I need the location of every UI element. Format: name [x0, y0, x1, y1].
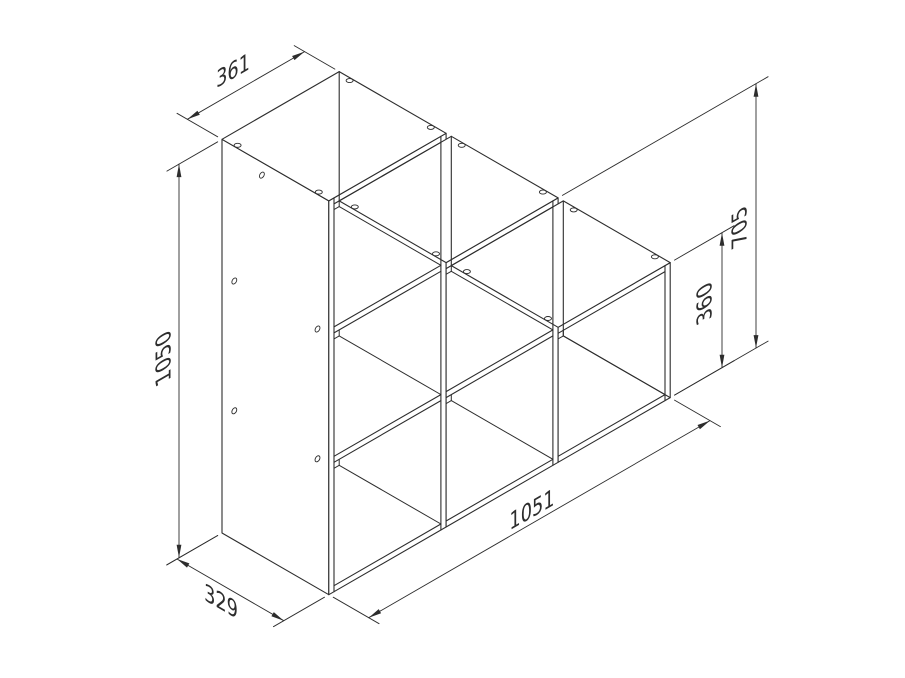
dim-label-total-width: 1051	[509, 483, 554, 537]
dim-extension-line	[167, 142, 218, 171]
dim-arrow	[187, 111, 199, 120]
dim-label-base-depth: 329	[204, 578, 238, 625]
dowel-hole	[351, 205, 358, 209]
dowel-hole	[427, 125, 434, 129]
dim-arrow	[177, 559, 189, 568]
shelf-geometry	[222, 72, 670, 595]
dim-extension-line	[273, 597, 324, 627]
dowel-hole	[651, 255, 658, 259]
dim-arrow	[369, 609, 381, 618]
dim-extension-line	[294, 46, 335, 70]
left-side-panel-face	[222, 139, 329, 594]
dim-arrow	[754, 84, 759, 97]
dim-arrow	[177, 164, 182, 177]
dim-extension-line	[675, 400, 721, 427]
dowel-hole	[346, 79, 353, 83]
dowel-hole	[433, 252, 440, 256]
drawing-canvas: 361 1050 329 1051 705 360	[0, 0, 905, 678]
dim-extension-line	[675, 361, 735, 395]
dim-arrow	[720, 355, 725, 368]
dowel-hole	[234, 143, 241, 147]
dim-extension-line	[333, 597, 379, 624]
dim-arrow	[177, 545, 182, 558]
dowel-hole	[539, 190, 546, 194]
dim-extension-line	[167, 536, 218, 566]
dowel-hole	[545, 317, 552, 321]
dowel-hole	[315, 190, 322, 194]
dim-arrow	[292, 52, 305, 61]
dim-arrow	[698, 421, 711, 430]
dowel-hole	[463, 270, 470, 274]
dim-label-top-cube-width: 361	[216, 47, 250, 94]
dim-extension-line	[562, 77, 768, 196]
dim-label-one-cube-height: 360	[693, 277, 717, 330]
isometric-shelf-drawing: 361 1050 329 1051 705 360	[0, 0, 905, 678]
dowel-hole	[458, 143, 465, 147]
dim-label-two-cube-height: 705	[728, 201, 752, 254]
dim-extension-line	[177, 113, 218, 137]
dim-extension-line	[675, 226, 735, 260]
dim-arrow	[271, 612, 283, 621]
dim-arrow	[754, 335, 759, 348]
dim-arrow	[720, 233, 725, 246]
dowel-hole	[570, 208, 577, 212]
dim-label-total-height: 1050	[152, 325, 176, 391]
